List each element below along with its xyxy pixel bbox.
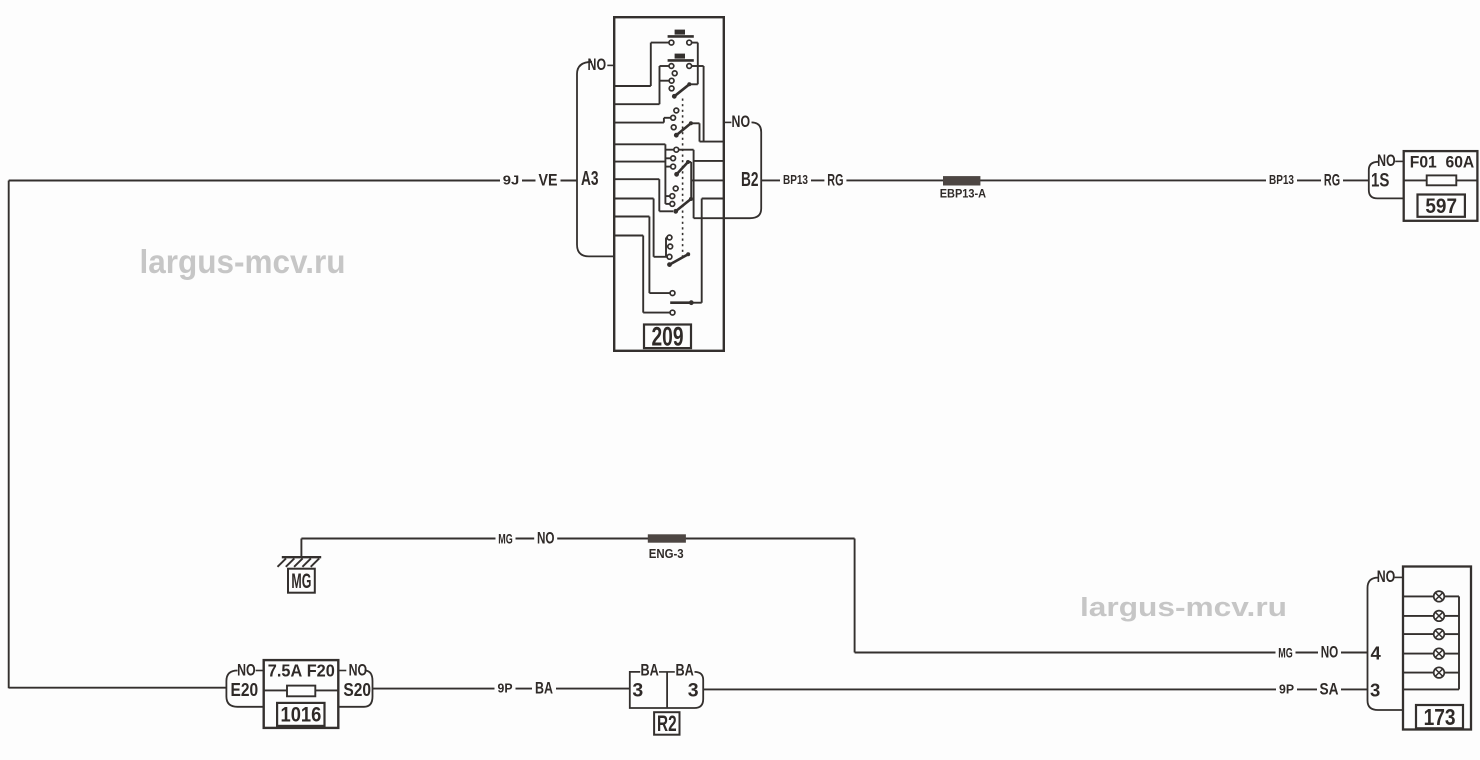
- svg-text:3: 3: [1370, 680, 1380, 701]
- svg-text:9J: 9J: [503, 173, 520, 187]
- svg-text:RG: RG: [827, 171, 843, 190]
- svg-text:209: 209: [652, 321, 684, 351]
- svg-text:BA: BA: [640, 662, 658, 680]
- svg-text:MG: MG: [291, 569, 311, 593]
- svg-text:largus-mcv.ru: largus-mcv.ru: [1080, 594, 1287, 622]
- svg-text:ENG-3: ENG-3: [649, 546, 684, 561]
- svg-text:NO: NO: [537, 529, 555, 547]
- svg-text:597: 597: [1425, 194, 1457, 218]
- svg-text:9P: 9P: [1279, 682, 1294, 696]
- svg-text:BP13: BP13: [783, 173, 808, 187]
- svg-text:EBP13-A: EBP13-A: [940, 189, 986, 201]
- svg-text:MG: MG: [1278, 644, 1293, 660]
- svg-text:3: 3: [632, 679, 643, 701]
- svg-text:BA: BA: [535, 680, 553, 698]
- svg-text:NO: NO: [237, 661, 256, 679]
- svg-text:NO: NO: [1377, 152, 1396, 170]
- svg-text:NO: NO: [1321, 643, 1339, 661]
- svg-text:S20: S20: [343, 680, 371, 700]
- svg-text:4: 4: [1371, 643, 1382, 664]
- svg-text:E20: E20: [231, 680, 259, 700]
- svg-text:1S: 1S: [1371, 170, 1389, 192]
- svg-text:R2: R2: [657, 711, 677, 736]
- svg-text:BA: BA: [675, 662, 693, 680]
- svg-text:B2: B2: [741, 169, 759, 191]
- svg-text:RG: RG: [1324, 171, 1340, 190]
- svg-text:NO: NO: [1377, 568, 1396, 586]
- svg-text:9P: 9P: [498, 682, 513, 696]
- svg-text:1016: 1016: [281, 703, 322, 727]
- svg-text:F01 60A: F01 60A: [1410, 152, 1475, 171]
- svg-text:3: 3: [688, 679, 699, 701]
- svg-text:VE: VE: [539, 171, 558, 189]
- svg-text:largus-mcv.ru: largus-mcv.ru: [140, 243, 346, 280]
- svg-text:A3: A3: [581, 168, 599, 190]
- svg-text:NO: NO: [732, 113, 751, 131]
- svg-text:NO: NO: [588, 56, 607, 74]
- svg-text:MG: MG: [498, 530, 513, 546]
- svg-text:173: 173: [1424, 704, 1456, 730]
- svg-text:7.5A F20: 7.5A F20: [268, 661, 335, 681]
- svg-text:NO: NO: [349, 661, 368, 679]
- svg-text:SA: SA: [1320, 680, 1339, 698]
- svg-text:BP13: BP13: [1269, 173, 1294, 187]
